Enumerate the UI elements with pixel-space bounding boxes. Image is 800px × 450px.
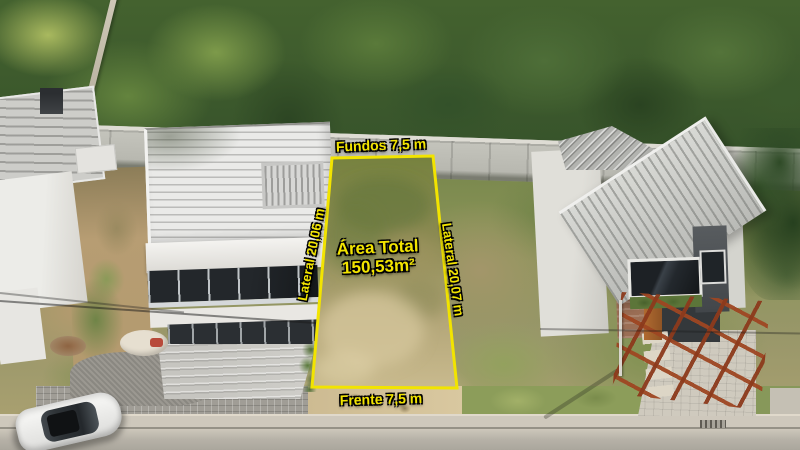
debris-pile xyxy=(50,336,86,356)
label-area-total: Área Total 150,53m² xyxy=(297,235,459,280)
right-house-small-window xyxy=(699,250,726,285)
shrubs xyxy=(297,344,325,392)
neighbor-annex-roof xyxy=(75,144,117,174)
car-glass-roof xyxy=(39,400,101,444)
neighbor-chimney xyxy=(40,88,63,114)
wood-pergola xyxy=(612,292,770,410)
left-house-upper-windows xyxy=(147,265,318,308)
left-house-stairs xyxy=(158,344,316,399)
utility-pole xyxy=(619,300,622,376)
aerial-photo: Fundos 7,5 m Lateral 20,06 m Área Total … xyxy=(0,0,800,450)
drain-grate xyxy=(700,420,726,428)
car-sunroof xyxy=(46,409,80,437)
right-house-window xyxy=(627,257,702,300)
red-sack xyxy=(150,338,163,347)
paver-corner xyxy=(770,388,800,414)
